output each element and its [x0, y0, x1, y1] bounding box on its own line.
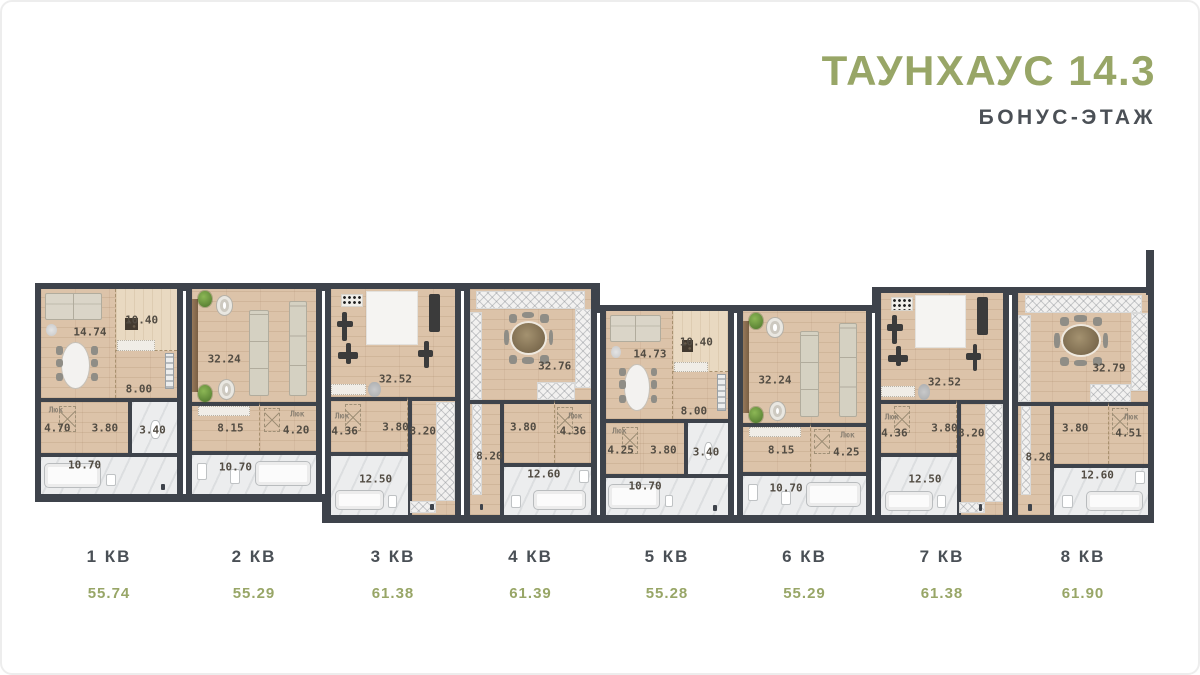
wall-segment [1009, 515, 1012, 523]
chair-icon [1074, 315, 1087, 322]
chair-icon [1060, 317, 1069, 326]
plant-icon [198, 385, 212, 401]
unit-summary-8: 8 КВ61.90 [1012, 548, 1154, 601]
bench-icon [470, 312, 482, 400]
bench-icon [1090, 384, 1132, 402]
unit-summary-2: 2 КВ55.29 [186, 548, 322, 601]
dining-table-icon [624, 364, 650, 411]
wall-segment [183, 494, 186, 502]
hatch-word-label: Люк [290, 410, 304, 419]
wall-segment [1146, 250, 1154, 295]
room-area-label: 12.60 [1081, 469, 1114, 482]
wall-segment [183, 283, 186, 291]
room-area-label: 3.40 [693, 445, 720, 458]
bathtub-icon [885, 491, 934, 511]
hatch-word-label: Люк [49, 405, 63, 414]
room-area-label: 3.80 [650, 443, 677, 456]
hatch-word-label: Люк [335, 411, 349, 420]
room-area-label: 10.70 [769, 482, 802, 495]
chair-icon [651, 368, 657, 376]
unit-total-area: 61.90 [1012, 586, 1154, 601]
unit-total-area: 55.28 [600, 586, 734, 601]
room-area-label: 32.79 [1092, 362, 1125, 375]
room-area-label: 32.52 [379, 373, 412, 386]
chair-icon [1074, 360, 1087, 367]
chair-icon [619, 380, 625, 388]
room-area-label: 4.36 [881, 426, 908, 439]
floor-plan-sheet: { "header": { "title": "ТАУНХАУС 14.3", … [0, 0, 1200, 675]
sink-icon [665, 495, 674, 507]
room-area-label: 32.52 [928, 375, 961, 388]
chair-icon [509, 314, 517, 323]
wall-segment [322, 494, 325, 523]
chair-icon [91, 359, 98, 367]
armchair-icon [216, 295, 233, 316]
door-mark-icon [161, 484, 165, 490]
chair-icon [509, 355, 517, 364]
door-mark-icon [430, 504, 434, 511]
chair-icon [56, 346, 63, 354]
unit-label: 7 КВ [875, 548, 1009, 565]
sink-icon [511, 495, 521, 509]
shelf-icon [743, 321, 749, 413]
gym-equipment-icon [418, 350, 433, 357]
unit-total-area: 55.74 [35, 586, 183, 601]
room-area-label: 4.51 [1115, 426, 1142, 439]
room-area-label: 3.40 [139, 424, 166, 437]
dumbbell-rack-icon [891, 297, 913, 310]
room-area-label: 4.25 [833, 445, 860, 458]
unit-label: 2 КВ [186, 548, 322, 565]
unit-summary-1: 1 КВ55.74 [35, 548, 183, 601]
stairs-icon [985, 404, 1003, 502]
bathtub-icon [335, 490, 385, 510]
chair-icon [1093, 317, 1102, 326]
wall-segment [461, 283, 464, 291]
room-area-label: 8.20 [1026, 451, 1053, 464]
shelf-icon [1135, 471, 1145, 484]
room-area-label: 3.80 [1062, 422, 1089, 435]
bathtub-icon [533, 490, 586, 510]
room-area-label: 8.00 [681, 404, 708, 417]
bench-icon [1131, 313, 1148, 391]
unit-plan-4: 32.768.203.80Люк4.3612.60 [464, 283, 597, 523]
unit-total-area: 55.29 [737, 586, 872, 601]
bathtub-icon [806, 482, 861, 506]
chair-icon [1060, 357, 1069, 366]
wall-segment [872, 515, 875, 523]
kitchen-counter-icon [674, 362, 708, 372]
hatch-word-label: Люк [568, 411, 582, 420]
unit-plan-8: 32.798.203.80Люк4.5112.60 [1012, 287, 1154, 523]
gym-equipment-icon [888, 355, 908, 362]
dining-table-icon [61, 342, 90, 389]
room-area-label: 10.40 [680, 335, 713, 348]
sink-icon [388, 495, 397, 509]
kitchen-counter-icon [198, 406, 250, 416]
kitchen-counter-icon [749, 427, 801, 437]
room-area-label: 4.25 [607, 443, 634, 456]
room-area-label: 4.70 [44, 422, 71, 435]
plant-icon [749, 313, 763, 329]
hatch-word-label: Люк [612, 427, 626, 436]
unit-plan-7: 32.52Люк4.363.808.2012.50 [875, 287, 1009, 523]
bathtub-icon [1086, 491, 1143, 511]
room-area-label: 14.73 [633, 347, 666, 360]
shelf-icon [192, 299, 198, 391]
armchair-icon [769, 401, 786, 421]
wall-segment [1009, 287, 1012, 295]
floor-lamp-icon [611, 346, 621, 358]
gym-equipment-icon [887, 324, 903, 331]
room-area-label: 8.15 [217, 422, 244, 435]
sink-icon [106, 474, 116, 486]
room-area-label: 10.70 [68, 459, 101, 472]
washer-icon [748, 484, 758, 500]
wall-segment [322, 283, 325, 291]
sofa-icon [45, 293, 102, 320]
kitchen-counter-icon [117, 340, 155, 350]
chair-icon [1054, 333, 1059, 349]
room-area-label: 10.70 [219, 461, 252, 474]
washer-icon [197, 463, 207, 479]
sofa-icon [610, 315, 661, 342]
bench-icon [1025, 295, 1142, 313]
room-area-label: 10.40 [125, 313, 158, 326]
unit-label: 8 КВ [1012, 548, 1154, 565]
bench-icon [537, 382, 576, 400]
sofa-icon [800, 331, 820, 417]
round-table-icon [510, 321, 548, 355]
shelf-icon [331, 384, 366, 395]
gym-equipment-icon [337, 321, 353, 328]
armchair-icon [766, 317, 783, 337]
wall-segment [461, 515, 464, 523]
stairs-icon [436, 402, 455, 501]
hatch-word-label: Люк [885, 413, 899, 422]
room-area-label: 3.80 [92, 422, 119, 435]
door-mark-icon [1028, 504, 1032, 511]
wall-segment [734, 305, 737, 313]
bench-icon [575, 309, 591, 388]
wall-segment [734, 515, 737, 523]
unit-plan-6: 32.248.15Люк4.2510.70 [737, 305, 872, 523]
unit-label: 3 КВ [325, 548, 461, 565]
chair-icon [619, 368, 625, 376]
unit-label: 6 КВ [737, 548, 872, 565]
unit-label: 5 КВ [600, 548, 734, 565]
chair-icon [504, 330, 509, 346]
bench-icon [476, 291, 585, 309]
unit-total-area: 61.38 [325, 586, 461, 601]
gym-equipment-icon [338, 352, 358, 359]
units-summary-row: 1 КВ55.742 КВ55.293 КВ61.384 КВ61.395 КВ… [0, 548, 1200, 628]
chair-icon [522, 312, 534, 319]
chair-icon [91, 346, 98, 354]
shelf-icon [579, 470, 589, 484]
door-mark-icon [979, 504, 983, 511]
unit-summary-4: 4 КВ61.39 [464, 548, 597, 601]
wall-segment [597, 283, 600, 313]
hatch-word-label: Люк [840, 431, 854, 440]
shelf-icon [881, 386, 915, 397]
unit-total-area: 61.39 [464, 586, 597, 601]
room-area-label: 4.36 [331, 425, 358, 438]
room-area-label: 4.36 [560, 425, 587, 438]
room-area-label: 32.76 [538, 359, 571, 372]
ladder-icon [717, 374, 726, 411]
unit-plan-1: 14.7410.408.00Люк4.703.803.4010.70 [35, 283, 183, 502]
room-area-label: 8.00 [126, 383, 153, 396]
plant-icon [198, 291, 212, 307]
plant-icon [749, 407, 763, 423]
sofa-icon [289, 301, 308, 395]
chair-icon [522, 357, 534, 364]
room-area-label: 3.80 [510, 420, 537, 433]
unit-summary-5: 5 КВ55.28 [600, 548, 734, 601]
unit-summary-7: 7 КВ61.38 [875, 548, 1009, 601]
room-area-label: 14.74 [73, 326, 106, 339]
room-area-label: 3.80 [931, 422, 958, 435]
chair-icon [619, 395, 625, 403]
room-area-label: 8.20 [410, 425, 437, 438]
sofa-icon [249, 310, 269, 396]
dumbbell-rack-icon [341, 294, 363, 308]
room-area-label: 12.50 [359, 472, 392, 485]
room-area-label: 8.20 [958, 426, 985, 439]
armchair-icon [218, 379, 235, 400]
sofa-icon [839, 323, 857, 417]
bathtub-icon [255, 461, 311, 486]
hatch-word-label: Люк [1124, 413, 1138, 422]
ladder-icon [165, 353, 175, 390]
unit-label: 1 КВ [35, 548, 183, 565]
room-area-label: 3.80 [382, 420, 409, 433]
room-area-label: 8.15 [768, 443, 795, 456]
chair-icon [651, 395, 657, 403]
chair-icon [540, 314, 548, 323]
unit-label: 4 КВ [464, 548, 597, 565]
door-mark-icon [713, 505, 717, 511]
gym-equipment-icon [966, 353, 981, 360]
unit-plan-2: 32.248.15Люк4.2010.70 [186, 283, 322, 502]
gym-mat-icon [915, 295, 966, 348]
unit-plan-5: 14.7310.408.00Люк4.253.803.4010.70 [600, 305, 734, 523]
unit-summary-3: 3 КВ61.38 [325, 548, 461, 601]
room-area-label: 12.50 [908, 473, 941, 486]
chair-icon [1103, 333, 1108, 349]
room-area-label: 8.20 [476, 450, 503, 463]
treadmill-icon [977, 297, 988, 335]
chair-icon [651, 380, 657, 388]
room-area-label: 32.24 [758, 374, 791, 387]
wall-segment [872, 287, 875, 313]
hatch-icon [264, 408, 280, 433]
sink-icon [1062, 495, 1072, 508]
room-area-label: 10.70 [628, 480, 661, 493]
room-area-label: 4.20 [283, 424, 310, 437]
room-area-label: 12.60 [527, 468, 560, 481]
chair-icon [91, 373, 98, 381]
wall-segment [597, 515, 600, 523]
door-mark-icon [480, 504, 484, 511]
chair-icon [56, 359, 63, 367]
unit-total-area: 61.38 [875, 586, 1009, 601]
sink-icon [937, 495, 946, 508]
treadmill-icon [429, 294, 440, 332]
bench-icon [1018, 315, 1031, 402]
unit-total-area: 55.29 [186, 586, 322, 601]
hatch-icon [814, 429, 830, 453]
unit-summary-6: 6 КВ55.29 [737, 548, 872, 601]
gym-mat-icon [366, 291, 418, 345]
chair-icon [56, 373, 63, 381]
unit-plan-3: 32.52Люк4.363.808.2012.50 [325, 283, 461, 523]
room-area-label: 32.24 [208, 352, 241, 365]
